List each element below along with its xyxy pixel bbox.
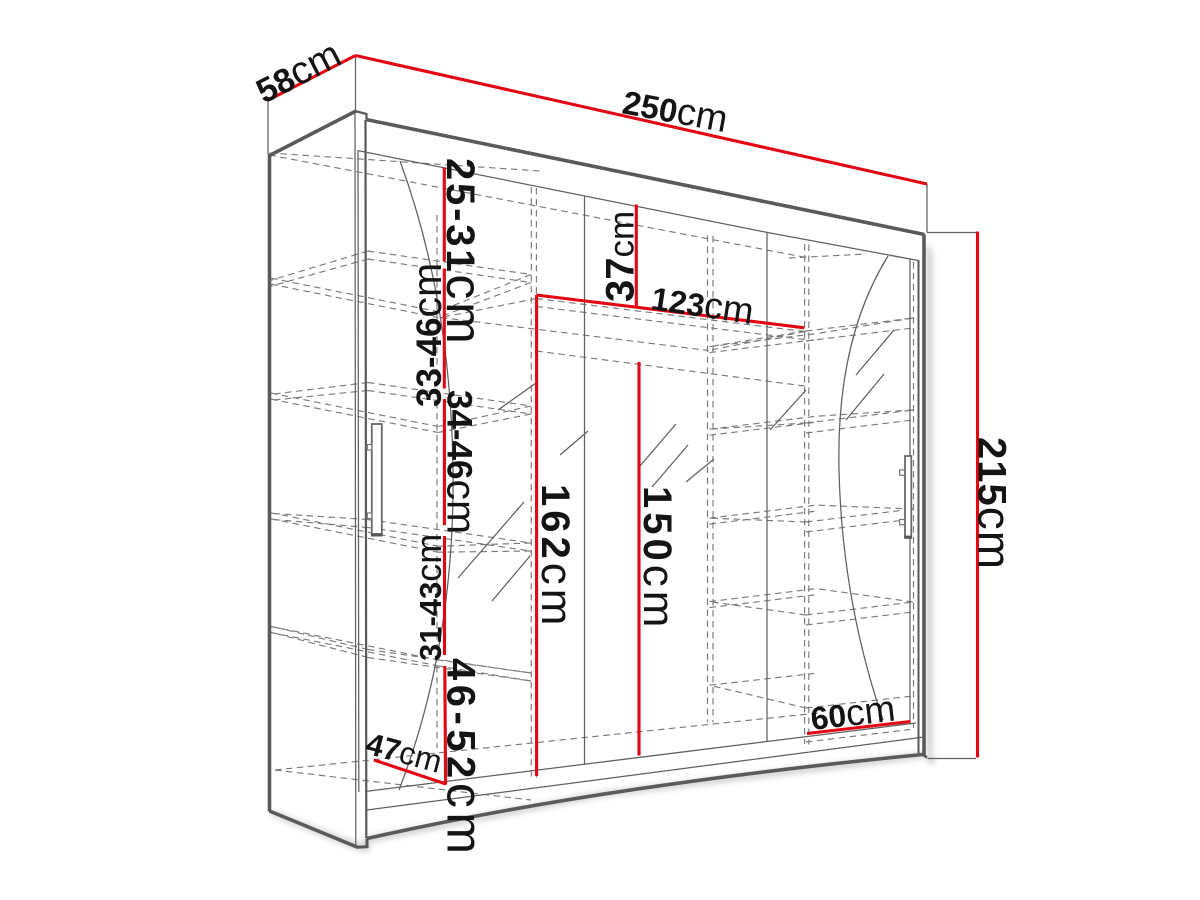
svg-text:31-43cm: 31-43cm xyxy=(408,534,449,661)
svg-text:37cm: 37cm xyxy=(599,211,643,302)
svg-text:150cm: 150cm xyxy=(634,486,683,631)
svg-text:33-46cm: 33-46cm xyxy=(404,263,450,407)
svg-text:34-46cm: 34-46cm xyxy=(439,390,485,534)
svg-text:162cm: 162cm xyxy=(532,484,581,629)
svg-text:215cm: 215cm xyxy=(969,437,1021,570)
